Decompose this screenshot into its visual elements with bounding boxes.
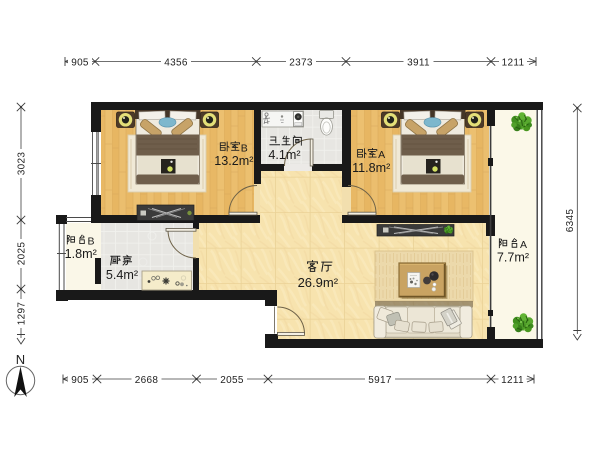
svg-text:1211: 1211 xyxy=(502,57,525,68)
svg-text:7.7m²: 7.7m² xyxy=(497,251,529,265)
svg-text:4.1m²: 4.1m² xyxy=(268,148,300,162)
svg-text:3023: 3023 xyxy=(17,152,28,176)
svg-text:11.8m²: 11.8m² xyxy=(352,161,390,175)
svg-text:2668: 2668 xyxy=(135,375,159,386)
svg-text:1.8m²: 1.8m² xyxy=(65,247,97,261)
svg-text:B: B xyxy=(88,235,95,247)
svg-text:N: N xyxy=(16,352,25,367)
svg-text:A: A xyxy=(378,149,385,161)
svg-text:5917: 5917 xyxy=(368,375,392,386)
svg-text:B: B xyxy=(241,142,248,154)
svg-text:1297: 1297 xyxy=(17,302,28,326)
svg-text:A: A xyxy=(520,239,527,251)
svg-text:2025: 2025 xyxy=(17,242,28,266)
svg-text:905: 905 xyxy=(71,57,89,68)
svg-text:2055: 2055 xyxy=(220,375,244,386)
svg-text:13.2m²: 13.2m² xyxy=(214,154,253,168)
svg-text:26.9m²: 26.9m² xyxy=(298,275,339,290)
svg-text:905: 905 xyxy=(71,375,89,386)
svg-text:4356: 4356 xyxy=(164,57,188,68)
svg-text:1211: 1211 xyxy=(501,375,524,386)
svg-text:6345: 6345 xyxy=(565,209,576,233)
svg-text:2373: 2373 xyxy=(289,57,313,68)
svg-text:5.4m²: 5.4m² xyxy=(106,268,138,282)
svg-text:3911: 3911 xyxy=(407,57,430,68)
